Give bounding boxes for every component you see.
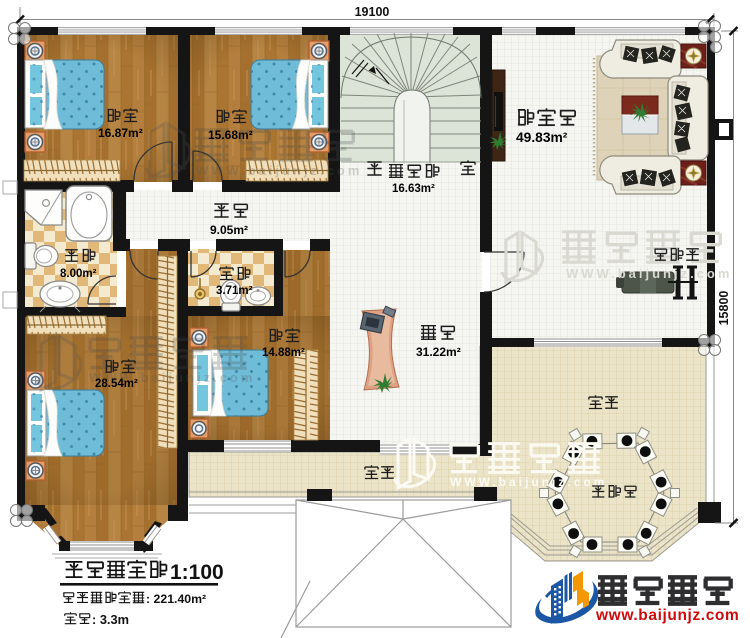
svg-text:: 221.40m²: : 221.40m²: [146, 592, 206, 606]
svg-text:49.83m²: 49.83m²: [516, 130, 568, 145]
svg-text:www.baijunjz.com: www.baijunjz.com: [595, 607, 739, 624]
svg-text:28.54m²: 28.54m²: [95, 378, 138, 390]
svg-text:8.00m²: 8.00m²: [60, 268, 97, 280]
svg-text:WWW.baijunjz.com: WWW.baijunjz.com: [450, 475, 607, 489]
svg-text:: 3.3m: : 3.3m: [92, 612, 129, 627]
svg-text:WWW.baijunjz.com: WWW.baijunjz.com: [566, 266, 732, 281]
svg-text:WWW.baijunjz.com: WWW.baijunjz.com: [196, 163, 362, 178]
svg-text:3.71m²: 3.71m²: [216, 285, 253, 297]
svg-text:1:100: 1:100: [170, 561, 224, 584]
svg-text:14.88m²: 14.88m²: [262, 347, 305, 359]
svg-text:16.87m²: 16.87m²: [98, 126, 143, 140]
svg-text:16.63m²: 16.63m²: [392, 183, 435, 195]
svg-text:9.05m²: 9.05m²: [210, 223, 248, 237]
svg-text:19100: 19100: [355, 5, 390, 19]
svg-text:15800: 15800: [717, 291, 731, 326]
svg-text:31.22m²: 31.22m²: [416, 345, 461, 359]
svg-text:15.68m²: 15.68m²: [208, 128, 253, 142]
